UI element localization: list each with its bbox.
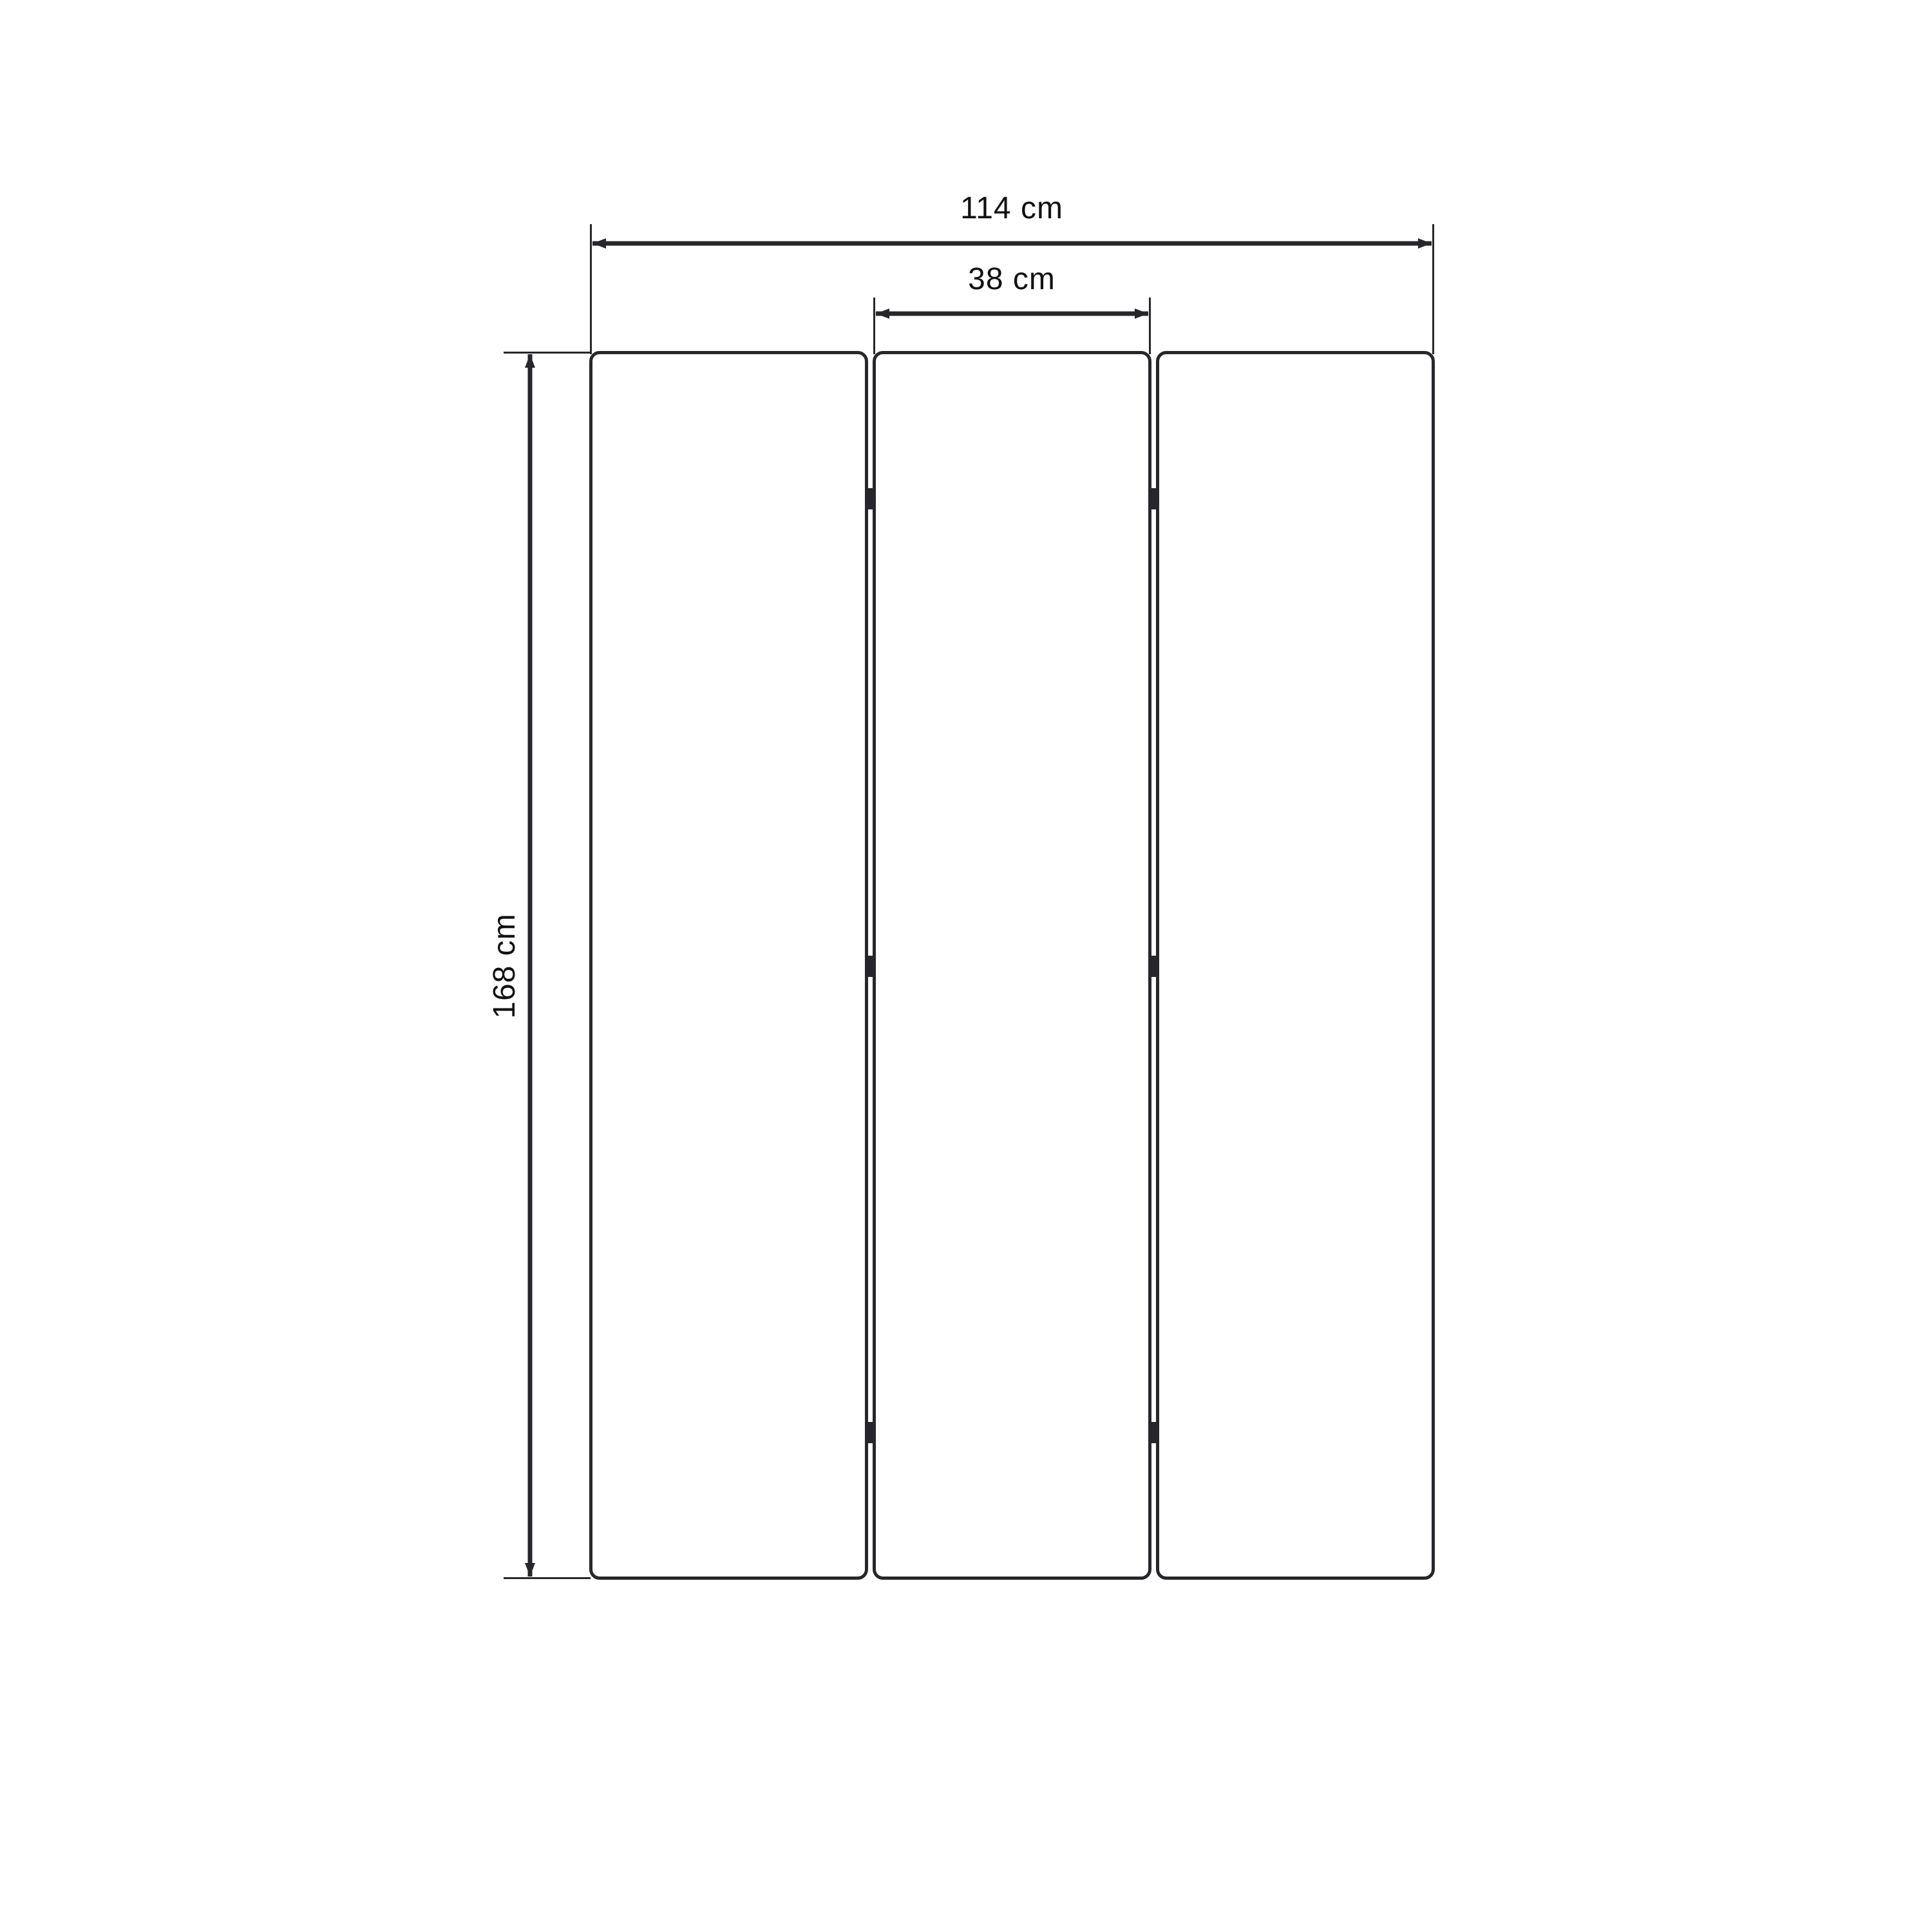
- hinge-marker: [866, 956, 875, 977]
- panel-middle: [873, 351, 1151, 1580]
- hinge-marker: [1150, 956, 1158, 977]
- panel-right: [1156, 351, 1435, 1580]
- panel-left: [589, 351, 868, 1580]
- hinge-marker: [1150, 488, 1158, 509]
- panel-width-label: 38 cm: [754, 260, 1269, 299]
- hinge-marker: [1150, 1422, 1158, 1443]
- hinge-marker: [866, 1422, 875, 1443]
- overall-width-label: 114 cm: [754, 189, 1269, 228]
- dimension-drawing-canvas: 114 cm 38 cm 168 cm: [0, 0, 1932, 1932]
- height-label: 168 cm: [486, 708, 524, 1224]
- hinge-marker: [866, 488, 875, 509]
